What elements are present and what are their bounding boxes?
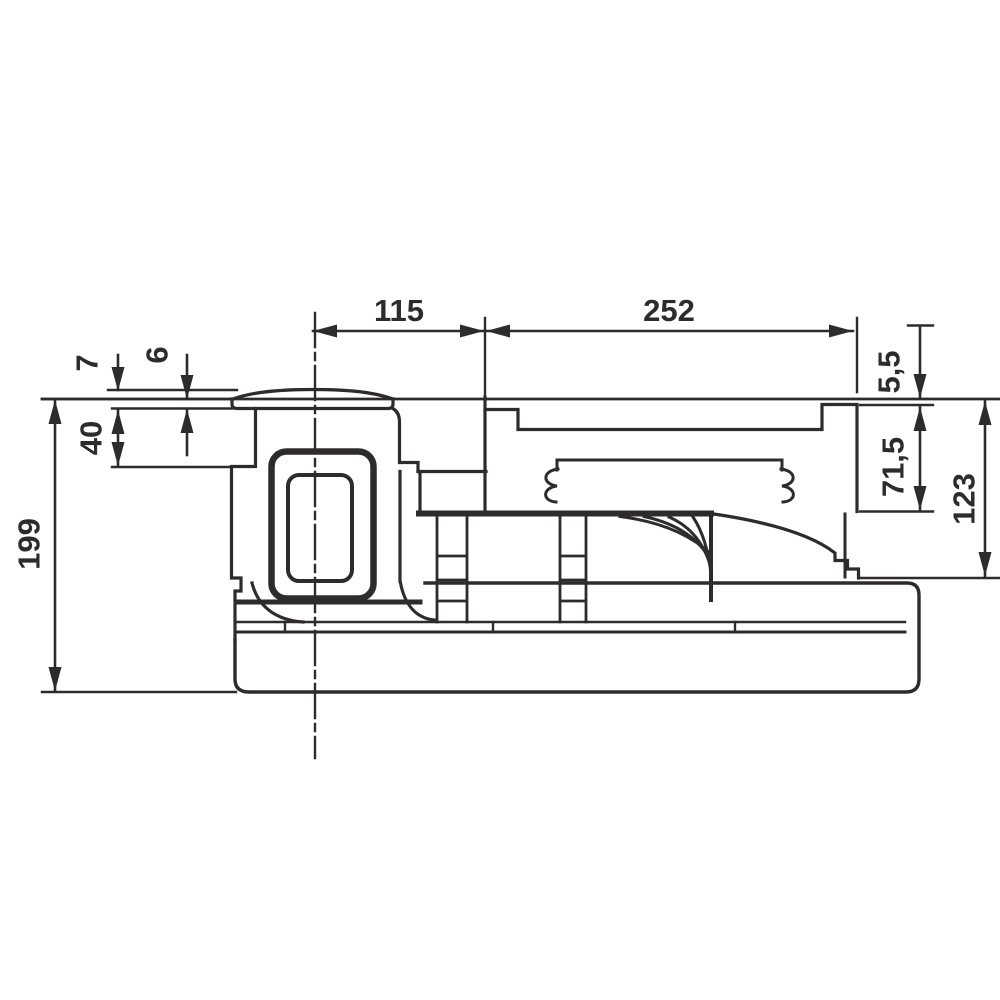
dim-label-115: 115 <box>374 293 424 328</box>
technical-drawing: 115 252 7 6 40 199 5,5 71,5 123 <box>0 0 1000 1000</box>
dim-label-5-5: 5,5 <box>872 350 907 393</box>
dimension-lines <box>55 327 985 690</box>
dim-label-199: 199 <box>12 518 47 570</box>
break-symbol-right <box>781 469 793 502</box>
arrow-252-left <box>486 325 510 338</box>
dimension-arrows <box>49 325 992 692</box>
arrow-6-down <box>181 375 194 399</box>
arrow-123-down <box>979 552 992 576</box>
break-symbol-left <box>546 469 558 502</box>
technical-drawing-canvas: 115 252 7 6 40 199 5,5 71,5 123 <box>0 0 1000 1000</box>
arrow-7-down <box>112 367 125 391</box>
arrow-199-top <box>49 400 62 424</box>
arrow-115-left <box>313 325 337 338</box>
arrow-6-up <box>181 409 194 433</box>
support-leg-right <box>560 514 586 622</box>
arrow-115-right <box>460 325 484 338</box>
dim-label-7: 7 <box>70 354 105 371</box>
arrow-123-up <box>979 401 992 425</box>
arrow-71-5-up <box>914 407 927 431</box>
fan-volute <box>620 513 859 600</box>
tower-right-shoulder <box>393 409 418 472</box>
dim-label-40: 40 <box>74 421 109 455</box>
arrow-40-up <box>112 410 125 434</box>
duct-outline <box>418 472 486 512</box>
dim-label-252: 252 <box>643 293 695 328</box>
support-legs <box>437 514 586 622</box>
dim-label-123: 123 <box>947 473 982 525</box>
scroll-cover-curve <box>714 514 859 578</box>
dim-label-6: 6 <box>140 346 175 363</box>
arrow-252-right <box>829 325 853 338</box>
tower-left-wall <box>232 409 256 641</box>
cap-dome <box>233 390 393 400</box>
inlet-channel-inner <box>288 475 352 581</box>
box-top-profile <box>485 405 857 512</box>
support-leg-left <box>437 514 467 622</box>
arrow-5-5-down <box>914 374 927 398</box>
arrow-40-down <box>112 442 125 466</box>
box-inner-panel <box>557 460 782 470</box>
arrow-199-bottom <box>49 667 62 691</box>
arrow-71-5-down <box>914 486 927 510</box>
dim-label-71-5: 71,5 <box>876 437 911 497</box>
